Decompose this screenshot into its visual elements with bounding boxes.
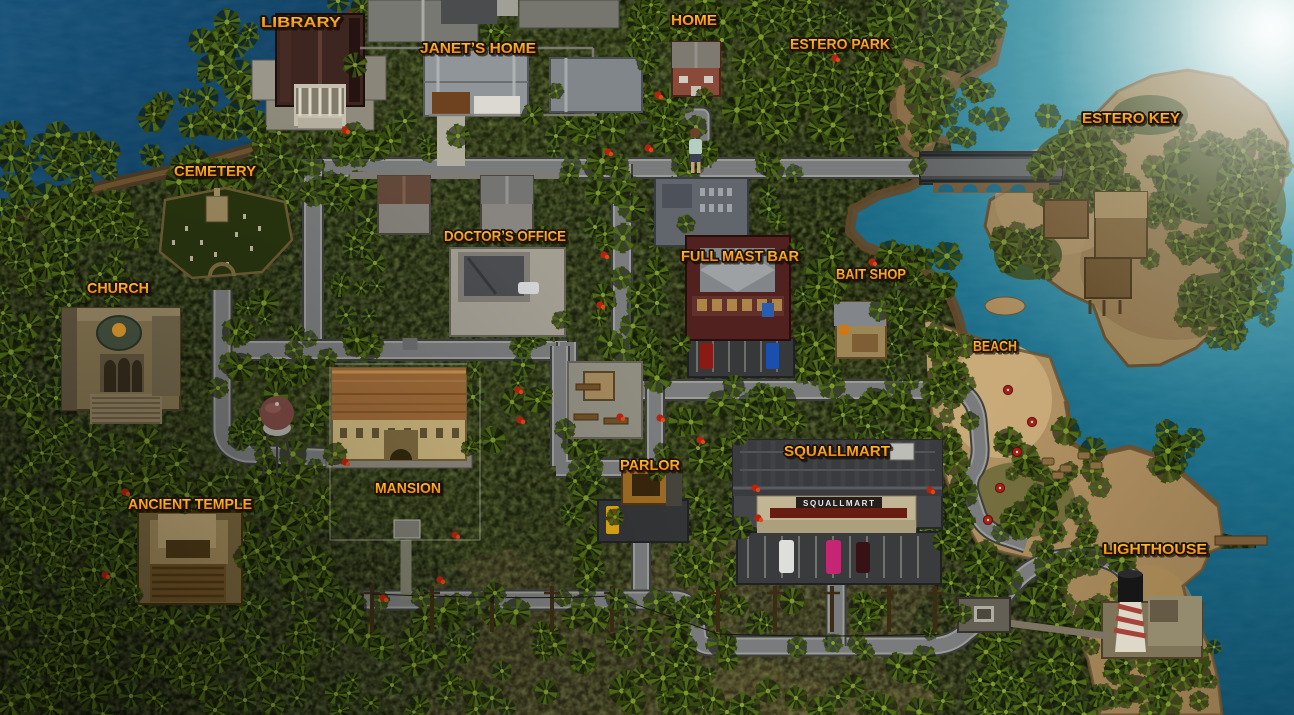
svg-text:CEMETERY: CEMETERY bbox=[174, 163, 256, 180]
svg-text:BEACH: BEACH bbox=[973, 338, 1017, 355]
svg-text:BAIT SHOP: BAIT SHOP bbox=[836, 266, 906, 283]
svg-text:FULL MAST BAR: FULL MAST BAR bbox=[681, 248, 799, 265]
svg-text:LIGHTHOUSE: LIGHTHOUSE bbox=[1103, 541, 1207, 558]
svg-text:ESTERO KEY: ESTERO KEY bbox=[1082, 110, 1180, 127]
svg-text:CHURCH: CHURCH bbox=[87, 280, 149, 297]
svg-text:DOCTORʼS OFFICE: DOCTORʼS OFFICE bbox=[444, 228, 566, 245]
svg-text:MANSION: MANSION bbox=[375, 480, 441, 497]
svg-text:SQUALLMART: SQUALLMART bbox=[784, 443, 890, 460]
svg-text:HOME: HOME bbox=[671, 12, 717, 29]
svg-text:LIBRARY: LIBRARY bbox=[261, 14, 341, 31]
svg-text:PARLOR: PARLOR bbox=[620, 457, 680, 474]
svg-text:ESTERO PARK: ESTERO PARK bbox=[790, 36, 890, 53]
svg-text:ANCIENT TEMPLE: ANCIENT TEMPLE bbox=[128, 496, 252, 513]
svg-text:JANETʼS HOME: JANETʼS HOME bbox=[420, 40, 536, 57]
